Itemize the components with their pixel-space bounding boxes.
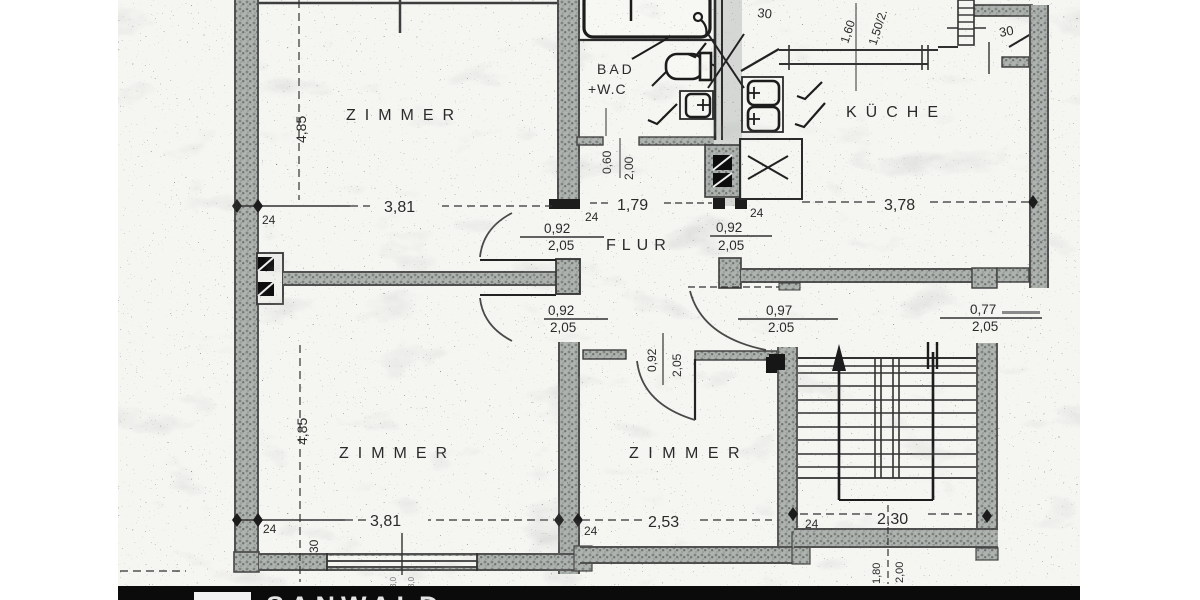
svg-text:SANWALD: SANWALD bbox=[266, 591, 445, 600]
